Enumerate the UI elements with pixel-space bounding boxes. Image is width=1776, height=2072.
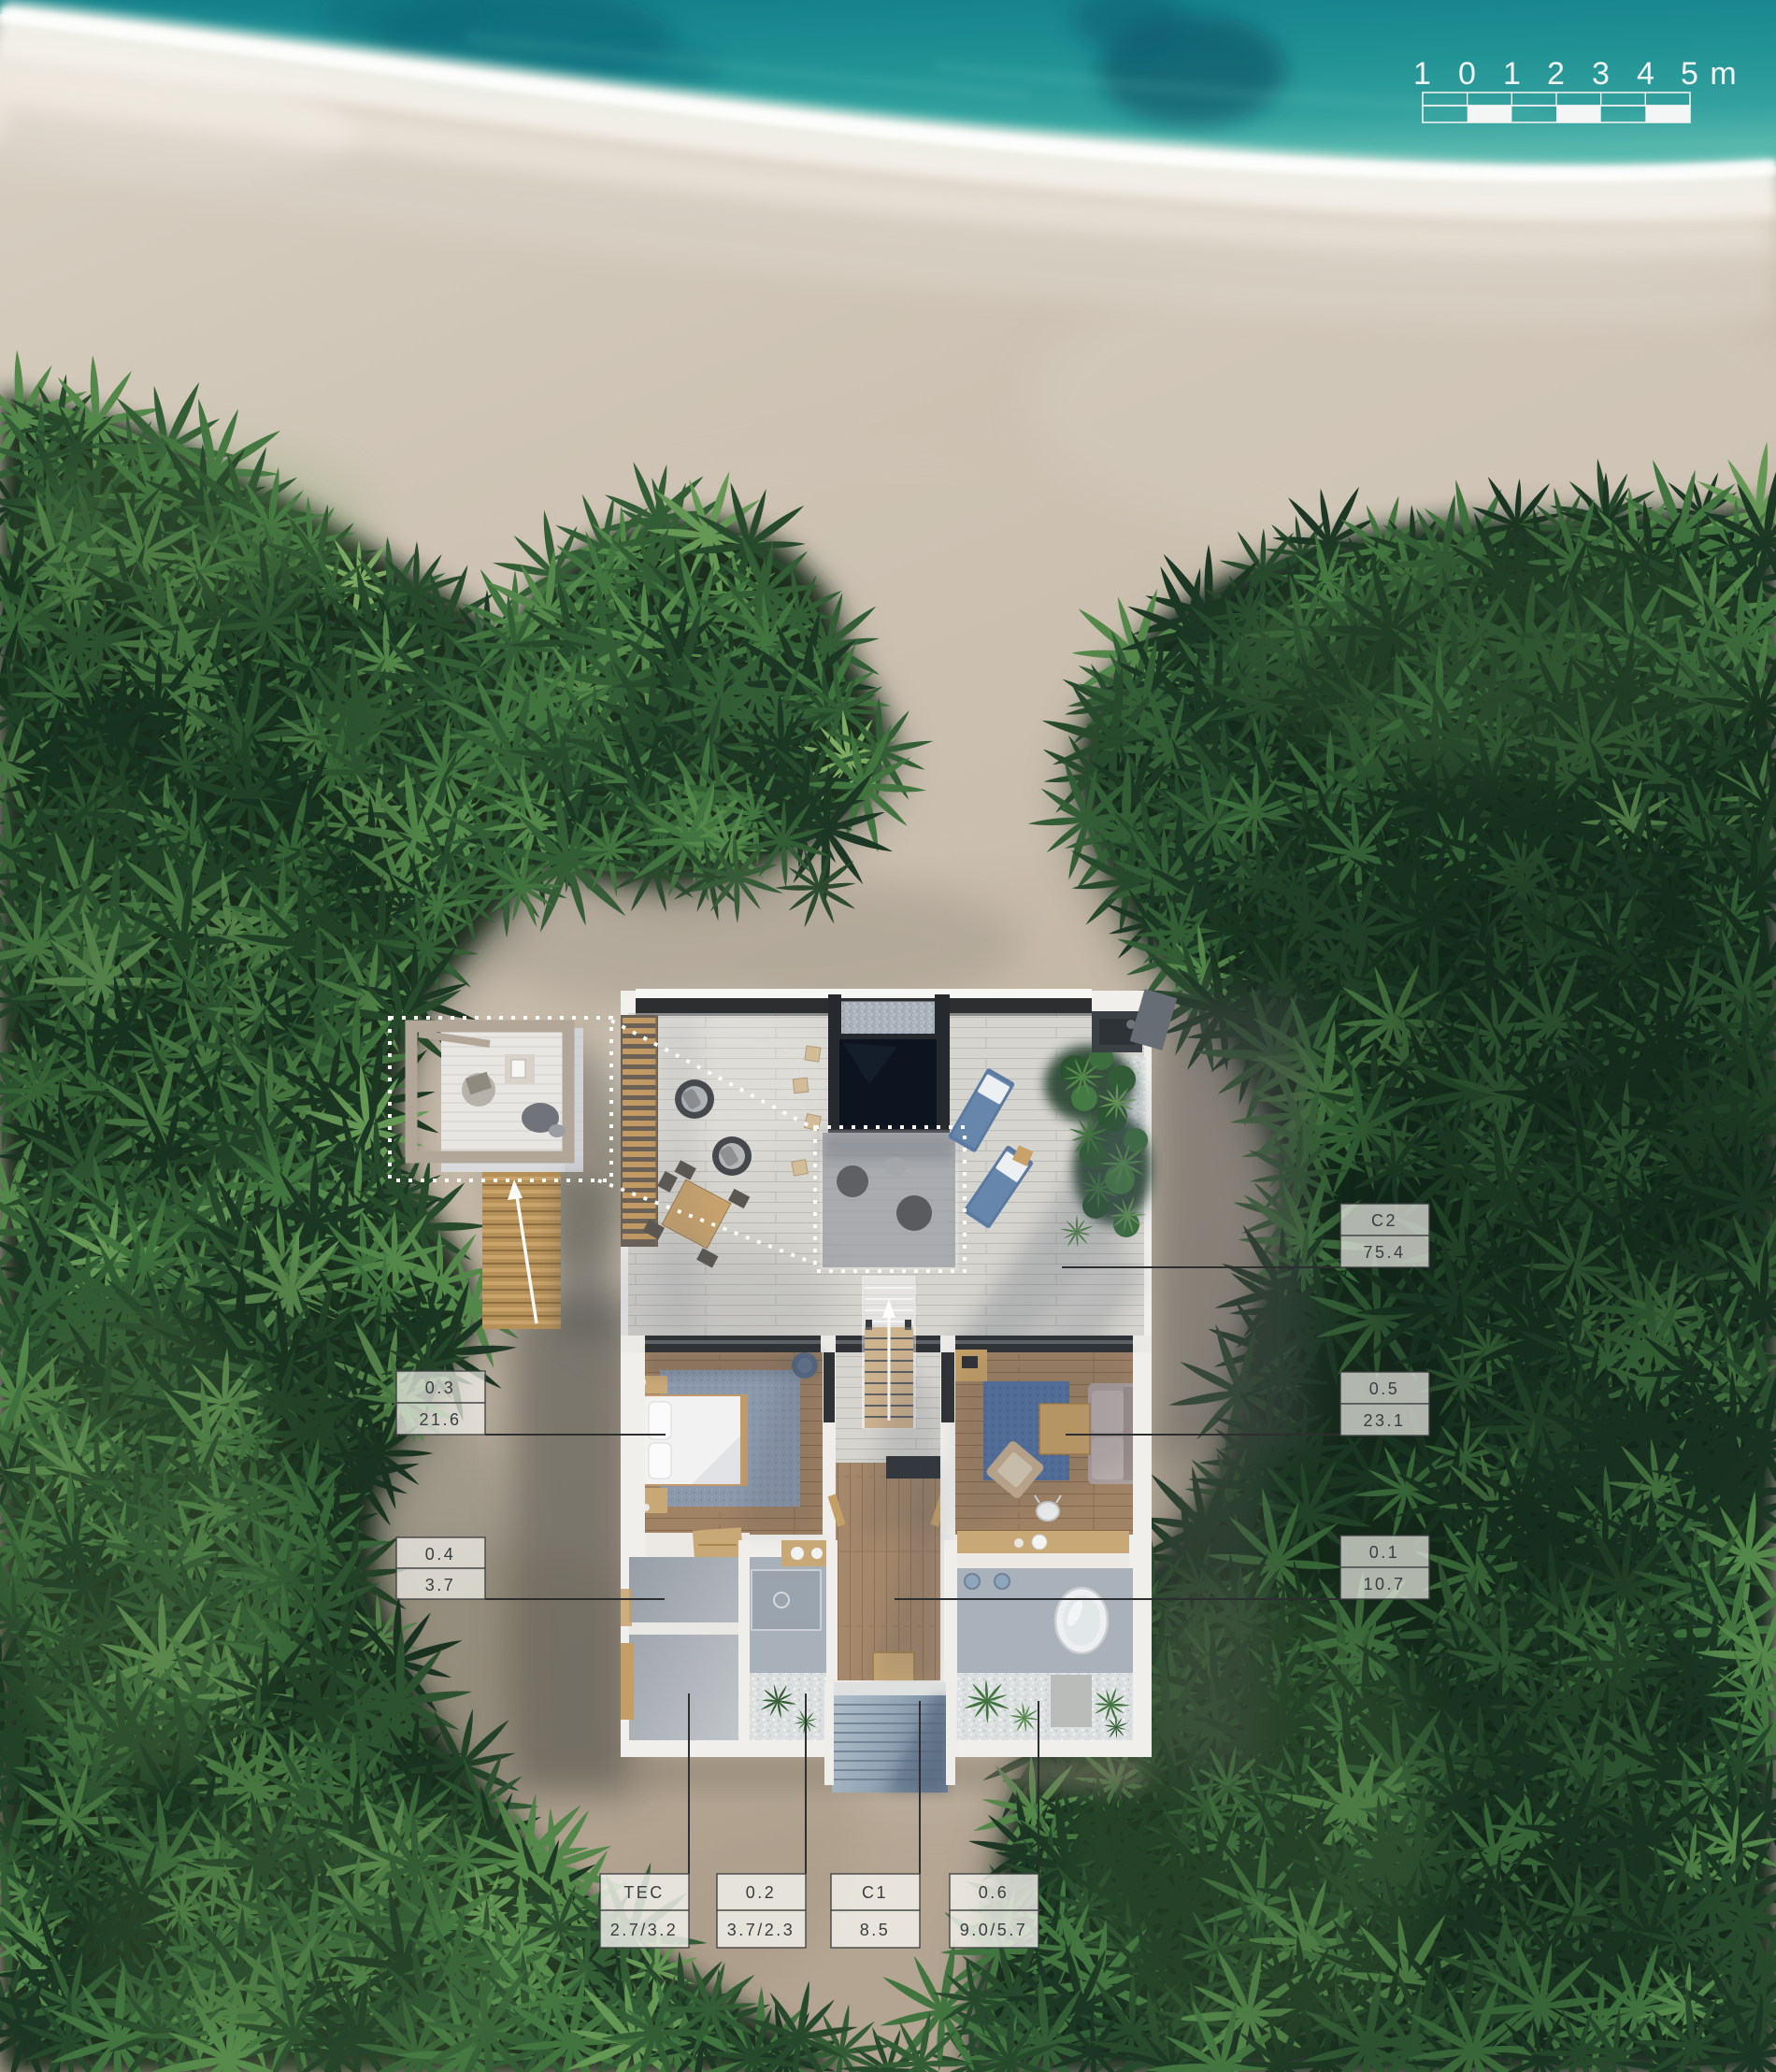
svg-text:C1: C1 [862, 1883, 888, 1902]
svg-text:5: 5 [1681, 56, 1699, 92]
svg-text:1: 1 [1413, 56, 1432, 92]
svg-text:0.5: 0.5 [1369, 1379, 1400, 1398]
svg-text:21.6: 21.6 [419, 1410, 461, 1429]
svg-text:C2: C2 [1371, 1211, 1397, 1230]
svg-text:0.4: 0.4 [425, 1545, 456, 1564]
svg-text:0.6: 0.6 [979, 1883, 1010, 1902]
svg-text:3.7: 3.7 [425, 1576, 456, 1594]
svg-text:4: 4 [1637, 56, 1655, 92]
svg-text:10.7: 10.7 [1363, 1575, 1405, 1593]
svg-text:0.1: 0.1 [1369, 1543, 1400, 1562]
svg-text:2: 2 [1547, 56, 1566, 92]
svg-text:m: m [1710, 56, 1737, 92]
svg-text:23.1: 23.1 [1363, 1411, 1405, 1430]
svg-text:0: 0 [1458, 56, 1477, 92]
svg-text:75.4: 75.4 [1363, 1243, 1405, 1262]
svg-text:2.7/3.2: 2.7/3.2 [610, 1921, 679, 1939]
svg-text:0.3: 0.3 [425, 1379, 456, 1397]
svg-text:3.7/2.3: 3.7/2.3 [727, 1921, 795, 1939]
svg-text:9.0/5.7: 9.0/5.7 [960, 1921, 1028, 1939]
svg-text:8.5: 8.5 [860, 1921, 891, 1939]
svg-text:1: 1 [1503, 56, 1522, 92]
svg-text:0.2: 0.2 [746, 1883, 777, 1902]
svg-text:3: 3 [1592, 56, 1611, 92]
svg-text:TEC: TEC [623, 1883, 665, 1902]
